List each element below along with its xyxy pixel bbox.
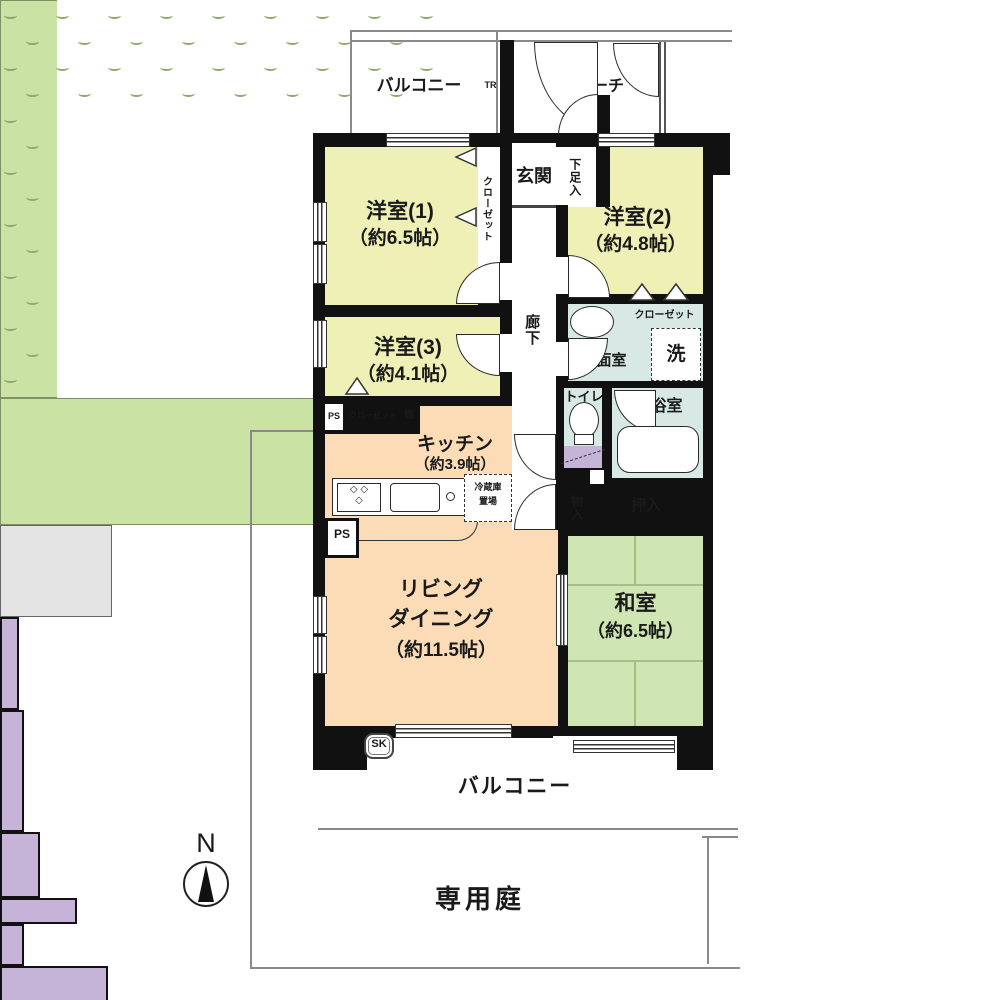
- japanese-label: 和室: [568, 592, 703, 616]
- porch-wall-line: [664, 42, 666, 135]
- western2-label: 洋室(2): [572, 206, 703, 230]
- floor-plan: 専用庭 バルコニー TR ポーチ クローゼット 下足入 クローゼット 洗面室: [0, 0, 1000, 1000]
- grass-tuft-icon: [4, 220, 17, 227]
- porch-wall-line: [659, 42, 661, 135]
- balcony-top: [0, 525, 112, 617]
- corridor-label: 廊下: [523, 300, 540, 360]
- window: [313, 320, 327, 368]
- sliding-door: [556, 574, 568, 646]
- grass-tuft-icon: [4, 116, 17, 123]
- shoe-cabinet-label: 下足入: [567, 150, 581, 204]
- grass-tuft-icon: [4, 324, 17, 331]
- boundary-line: [250, 430, 252, 969]
- wall: [596, 143, 610, 209]
- toilet-base: [574, 434, 594, 445]
- window: [573, 740, 675, 753]
- shoe-cabinet: [0, 832, 40, 898]
- compass-needle-icon: [198, 865, 214, 902]
- boundary-line: [250, 430, 317, 432]
- window: [313, 244, 327, 284]
- sk-label: SK: [364, 738, 394, 751]
- closet-fold-icon: [454, 146, 478, 168]
- grass-tuft-icon: [26, 350, 39, 357]
- sink: [390, 483, 440, 512]
- window: [395, 724, 512, 738]
- wall: [313, 303, 512, 317]
- trunk-room: [0, 617, 19, 710]
- closet-east: [0, 898, 77, 924]
- western1-size: （約6.5帖）: [320, 228, 480, 250]
- window: [313, 202, 327, 242]
- storage: [0, 924, 24, 966]
- closet-fold-icon: [662, 282, 690, 302]
- wall: [500, 133, 512, 263]
- grass-tuft-icon: [4, 376, 17, 383]
- grass-tuft-icon: [4, 168, 17, 175]
- living-line1: リビング: [341, 578, 541, 602]
- wet-gap: [590, 470, 604, 484]
- closet-east-label: クローゼット: [626, 310, 703, 322]
- window: [313, 596, 327, 634]
- living-line2: ダイニング: [341, 608, 541, 632]
- entrance-label: 玄関: [512, 166, 556, 187]
- window: [598, 133, 655, 147]
- balcony-bottom-label: バルコニー: [400, 775, 630, 799]
- oshiire: [0, 966, 108, 1000]
- grass-tuft-icon: [26, 142, 39, 149]
- balcony-top-label: バルコニー: [363, 76, 475, 96]
- north-label: N: [186, 828, 226, 859]
- kitchen-upper: [420, 406, 512, 436]
- closet-fold-icon: [344, 376, 370, 396]
- fridge-line2: 置場: [464, 496, 512, 506]
- sink-drain: [446, 492, 455, 501]
- closet-fold-icon: [628, 282, 656, 302]
- window: [386, 133, 470, 147]
- oshiire-label: 押入: [592, 497, 700, 514]
- toilet-bowl: [569, 402, 599, 438]
- closet-western1: [0, 710, 24, 832]
- shelf-label: 棚: [399, 410, 419, 422]
- tatami-line: [634, 662, 636, 726]
- storage-label: 物入: [569, 490, 583, 526]
- kitchen-size: （約3.9帖）: [385, 456, 525, 473]
- boundary-line: [707, 836, 709, 964]
- living-size: （約11.5帖）: [341, 640, 541, 662]
- grass-tuft-icon: [4, 272, 17, 279]
- tatami-line: [634, 536, 636, 584]
- grass-tuft-icon: [26, 298, 39, 305]
- grass-tuft-icon: [26, 246, 39, 253]
- kitchen-label: キッチン: [385, 434, 525, 456]
- wall: [500, 40, 514, 135]
- wall: [596, 95, 610, 135]
- western2-size: （約4.8帖）: [560, 234, 711, 256]
- tatami-line: [568, 584, 703, 586]
- pillar: [677, 724, 713, 770]
- room-western2-top: [610, 147, 703, 209]
- ps-south-label: PS: [325, 528, 359, 542]
- garden-label: 専用庭: [400, 885, 560, 915]
- garden-strip-west: [0, 0, 57, 398]
- japanese-size: （約6.5帖）: [560, 621, 711, 642]
- ps-north-label: PS: [323, 411, 345, 421]
- closet-small-label: クローゼット: [349, 411, 395, 420]
- boundary-line: [250, 967, 740, 969]
- bathtub: [617, 426, 699, 473]
- trunk-room-label: TR: [481, 80, 500, 90]
- washbasin: [570, 306, 614, 338]
- closet-fold-icon: [454, 206, 478, 228]
- boundary-line: [318, 828, 738, 830]
- fridge-line1: 冷蔵庫: [464, 482, 512, 492]
- grass-tuft-icon: [26, 194, 39, 201]
- laundry-label: 洗: [651, 344, 701, 366]
- stove: ◇ ◇◇: [337, 483, 381, 512]
- pillar: [313, 724, 367, 770]
- window: [313, 636, 327, 674]
- closet-western1-label: クローゼット: [480, 156, 492, 262]
- entrance-step-line: [512, 205, 556, 208]
